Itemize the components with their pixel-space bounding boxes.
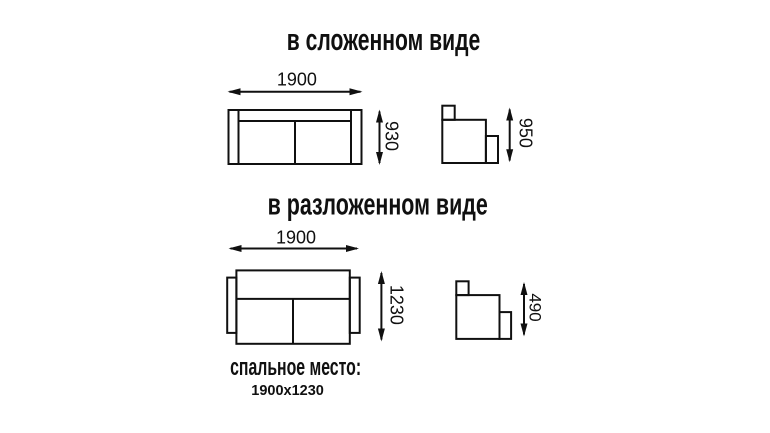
svg-text:950: 950 (515, 118, 535, 148)
svg-text:490: 490 (526, 293, 545, 321)
svg-text:спальное место:: спальное место: (230, 355, 361, 381)
svg-text:в сложенном виде: в сложенном виде (287, 22, 480, 57)
svg-text:1900х1230: 1900х1230 (251, 383, 324, 399)
svg-text:1900: 1900 (277, 70, 317, 90)
svg-text:1230: 1230 (386, 285, 406, 325)
svg-text:1900: 1900 (276, 228, 316, 248)
svg-text:в разложенном виде: в разложенном виде (268, 187, 488, 222)
svg-text:930: 930 (381, 121, 401, 151)
